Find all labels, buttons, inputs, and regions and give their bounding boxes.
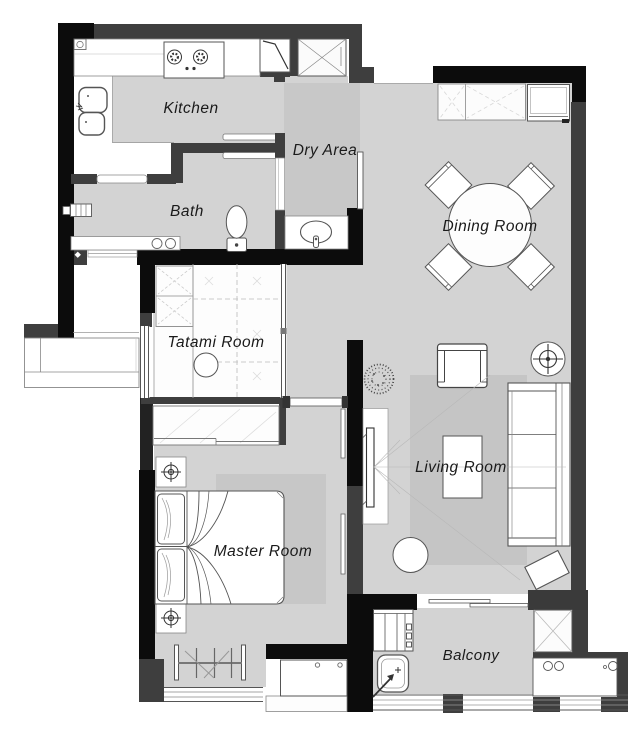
svg-text:Tatami Room: Tatami Room [167,334,264,351]
svg-text:Master Room: Master Room [214,543,313,560]
svg-text:Dining Room: Dining Room [442,218,537,235]
svg-text:Dry Area: Dry Area [293,142,358,159]
svg-text:Balcony: Balcony [443,647,501,664]
svg-text:Living Room: Living Room [415,459,507,476]
svg-text:Bath: Bath [170,203,204,220]
svg-text:Kitchen: Kitchen [163,100,218,117]
